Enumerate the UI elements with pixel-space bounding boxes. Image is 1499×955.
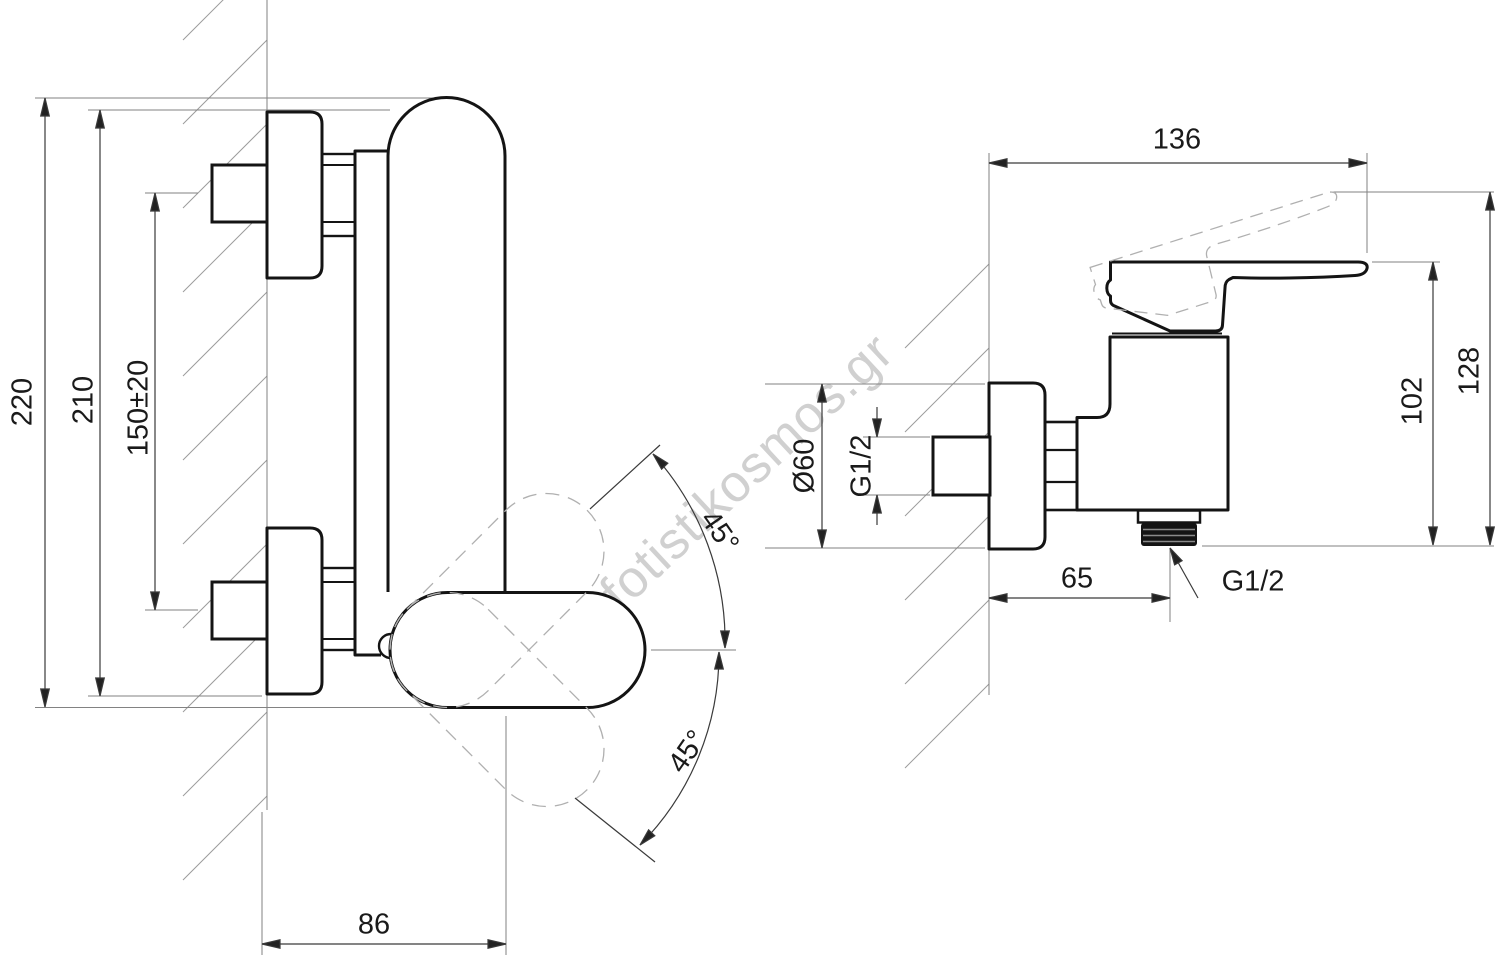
dim-label-height-escutcheons: 210 xyxy=(70,376,99,424)
escutcheon-upper-side xyxy=(267,112,322,278)
dim-label-escutcheon-dia: Ø60 xyxy=(791,439,820,494)
dim-65 xyxy=(989,594,1170,603)
dim-128 xyxy=(1486,192,1495,545)
technical-drawing-page: fotistikosmos.gr xyxy=(0,0,1499,955)
dim-label-inlet-thread: G1/2 xyxy=(848,435,877,498)
dims-side xyxy=(41,98,730,948)
wall-hatching-front xyxy=(905,264,989,768)
mixer-body-side-fill xyxy=(388,98,505,592)
reference-lines-side xyxy=(35,98,736,955)
dim-136 xyxy=(989,159,1367,168)
dim-label-height-handle: 102 xyxy=(1399,377,1428,425)
dim-220 xyxy=(41,98,50,707)
dim-label-height-overall: 220 xyxy=(9,378,38,426)
lever-handle-front xyxy=(1107,262,1367,331)
dim-label-height-raised: 128 xyxy=(1456,347,1485,395)
inlet-stub-lower-side xyxy=(212,582,267,639)
dim-label-outlet-thread: G1/2 xyxy=(1222,568,1285,597)
wall-connector-front xyxy=(1045,422,1077,510)
inlet-stub-front xyxy=(933,437,990,495)
wall-hatching-side xyxy=(183,0,267,880)
side-view xyxy=(35,0,736,955)
escutcheon-lower-side xyxy=(267,528,322,694)
lever-handle-side xyxy=(390,593,645,708)
leader-g12-outlet xyxy=(1170,548,1198,598)
dim-86 xyxy=(262,940,506,949)
dim-label-outlet-offset: 65 xyxy=(1061,565,1093,594)
dim-102 xyxy=(1429,262,1438,545)
mixer-body-front xyxy=(1077,337,1228,510)
inlet-stub-upper-side xyxy=(212,165,267,222)
outlet-thread xyxy=(1141,523,1197,546)
escutcheon-front xyxy=(989,383,1045,549)
dim-label-depth: 86 xyxy=(358,911,390,940)
inlet-connector-lower xyxy=(322,568,355,650)
dim-label-width-overall: 136 xyxy=(1153,126,1201,155)
outlet-collar xyxy=(1138,511,1200,523)
dim-label-inlet-spacing: 150±20 xyxy=(125,360,154,457)
body-flange-side xyxy=(355,151,388,655)
faucet-technical-drawing xyxy=(0,0,1499,955)
inlet-connector-upper xyxy=(322,154,355,236)
